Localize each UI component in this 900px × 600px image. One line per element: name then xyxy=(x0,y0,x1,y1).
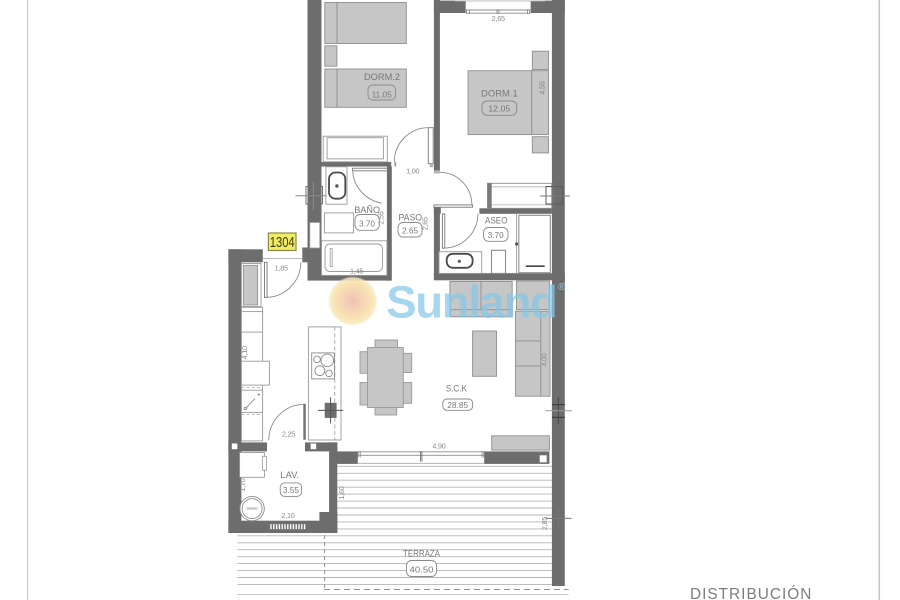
svg-text:1,85: 1,85 xyxy=(275,264,288,273)
svg-text:2.65: 2.65 xyxy=(402,225,418,235)
svg-text:1,70: 1,70 xyxy=(238,478,247,491)
svg-text:28.85: 28.85 xyxy=(447,400,468,410)
svg-text:4,55: 4,55 xyxy=(538,81,547,94)
svg-text:3.70: 3.70 xyxy=(359,218,375,228)
svg-text:®: ® xyxy=(558,282,566,293)
svg-text:2,65: 2,65 xyxy=(420,217,429,230)
svg-text:ASEO: ASEO xyxy=(485,215,508,226)
svg-text:Sunland: Sunland xyxy=(386,277,556,328)
svg-text:2,25: 2,25 xyxy=(282,430,295,439)
svg-text:2,65: 2,65 xyxy=(492,14,505,23)
svg-text:PASO: PASO xyxy=(399,211,423,222)
svg-text:4,10: 4,10 xyxy=(240,346,249,359)
svg-text:1,45: 1,45 xyxy=(350,266,363,275)
svg-text:3.55: 3.55 xyxy=(283,485,299,495)
svg-text:S.C.K: S.C.K xyxy=(446,383,468,394)
svg-text:2,85: 2,85 xyxy=(540,517,549,530)
svg-text:TERRAZA: TERRAZA xyxy=(403,547,441,558)
svg-text:1,60: 1,60 xyxy=(337,486,346,499)
svg-text:12.05: 12.05 xyxy=(488,103,510,113)
svg-text:1,00: 1,00 xyxy=(406,167,419,176)
svg-text:2,10: 2,10 xyxy=(281,511,294,520)
svg-text:40.50: 40.50 xyxy=(410,564,434,574)
svg-text:DORM.2: DORM.2 xyxy=(364,71,400,82)
svg-text:3.70: 3.70 xyxy=(488,230,504,240)
svg-text:2,55: 2,55 xyxy=(376,211,385,224)
svg-text:11.05: 11.05 xyxy=(372,89,392,99)
svg-text:1304: 1304 xyxy=(270,234,295,251)
svg-text:DISTRIBUCIÓN: DISTRIBUCIÓN xyxy=(690,586,812,600)
svg-text:4,90: 4,90 xyxy=(432,441,445,450)
svg-text:LAV.: LAV. xyxy=(280,469,299,480)
svg-text:DORM.1: DORM.1 xyxy=(481,88,518,99)
svg-text:4,00: 4,00 xyxy=(540,353,549,366)
